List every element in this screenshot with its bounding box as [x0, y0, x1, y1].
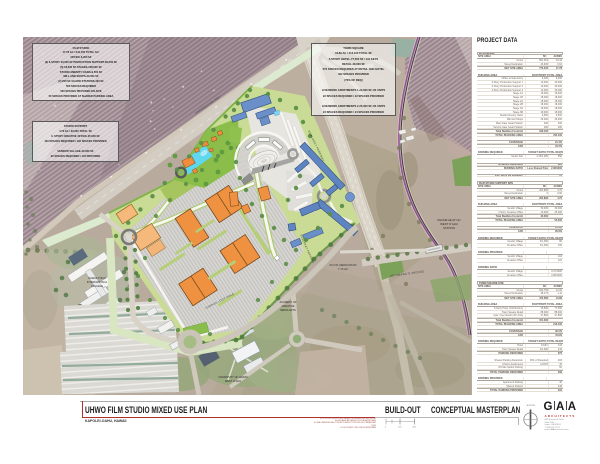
svg-text:STATION: STATION: [443, 226, 455, 230]
svg-text:100: 100: [398, 427, 402, 429]
svg-text:UNIVERSITY OF HAWAII: UNIVERSITY OF HAWAII: [218, 375, 248, 379]
svg-text:7.73 AC: 7.73 AC: [338, 267, 348, 271]
svg-text:200: 200: [413, 427, 417, 429]
svg-text:INTERNATIONAL: INTERNATIONAL: [87, 280, 108, 284]
svg-text:HAWAII TOKAI: HAWAII TOKAI: [88, 276, 106, 280]
svg-text:0: 0: [385, 427, 387, 429]
svg-text:MEDIA ARTS: MEDIA ARTS: [280, 308, 296, 312]
svg-text:COLLEGE: COLLEGE: [91, 284, 104, 288]
svg-text:CREATIVE: CREATIVE: [282, 304, 295, 308]
svg-text:ACADEMY OF: ACADEMY OF: [279, 300, 297, 304]
